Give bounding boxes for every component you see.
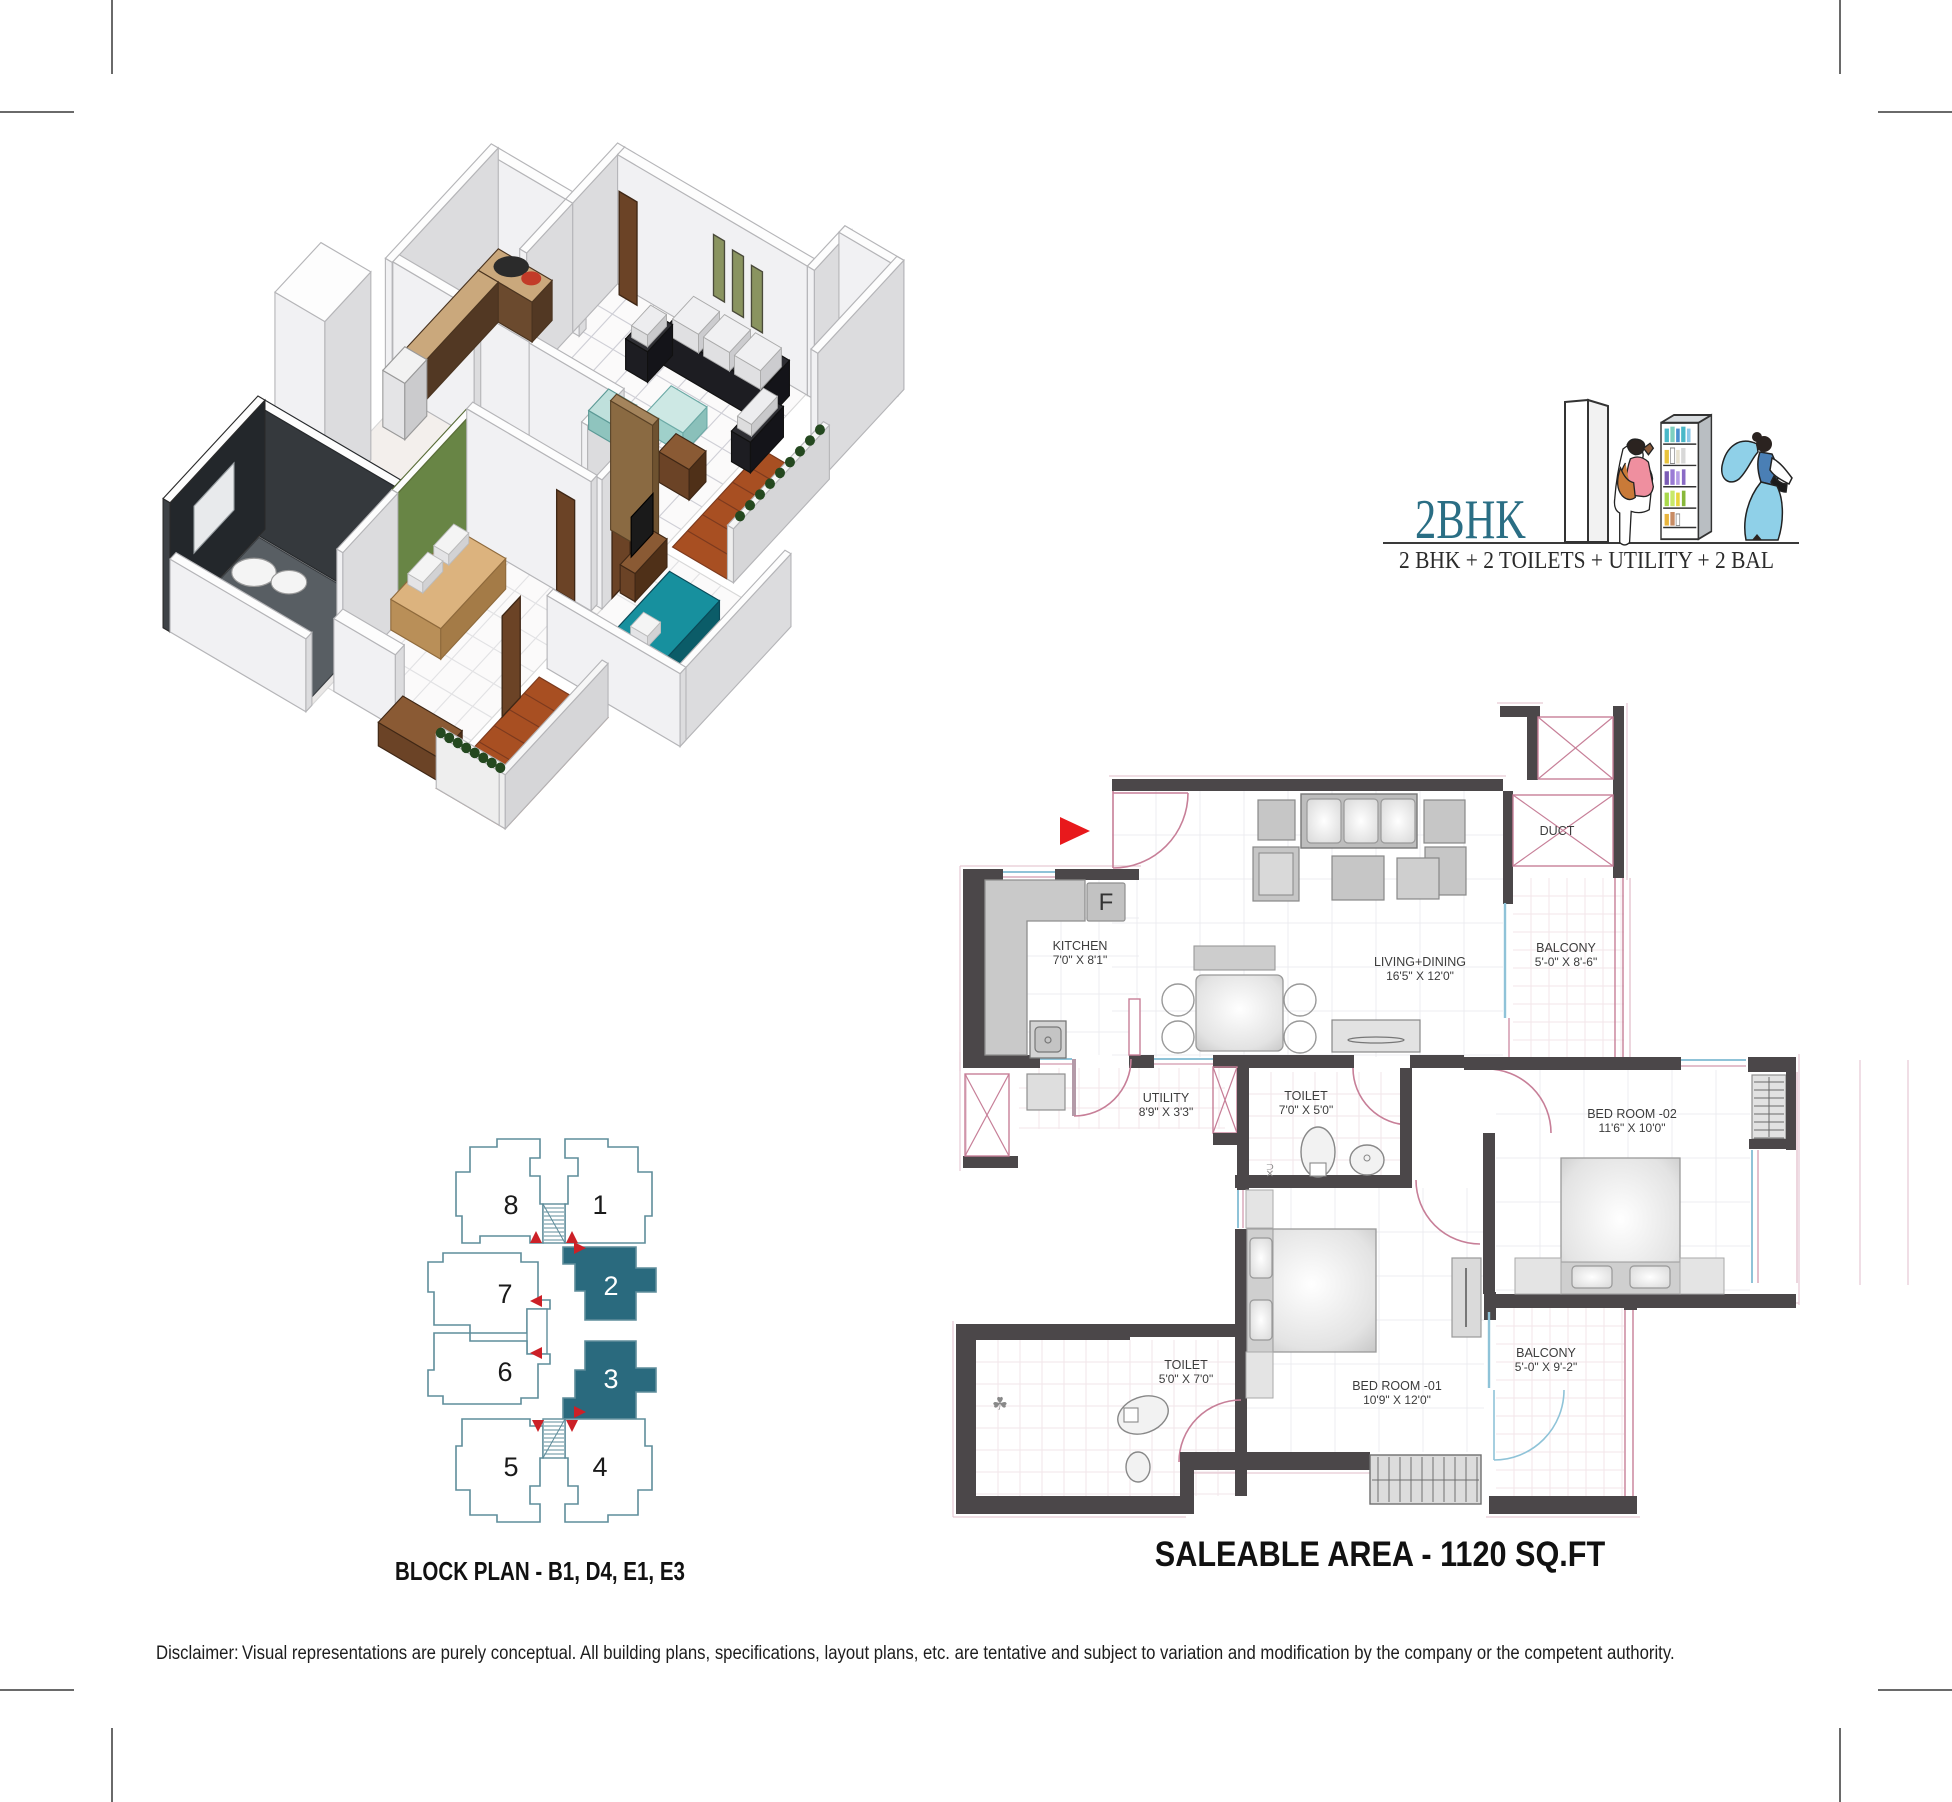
svg-text:TOILET: TOILET [1284, 1089, 1328, 1103]
svg-text:8: 8 [503, 1190, 518, 1220]
svg-text:7'0" X 5'0": 7'0" X 5'0" [1279, 1103, 1333, 1117]
svg-text:KITCHEN: KITCHEN [1053, 939, 1108, 953]
svg-text:3: 3 [603, 1364, 618, 1394]
svg-text:F: F [1099, 889, 1114, 916]
svg-text:2: 2 [603, 1271, 618, 1301]
svg-text:LIVING+DINING: LIVING+DINING [1374, 955, 1466, 969]
svg-text:BED ROOM -02: BED ROOM -02 [1587, 1107, 1677, 1121]
svg-text:16'5" X 12'0": 16'5" X 12'0" [1386, 969, 1454, 983]
svg-text:7'0" X 8'1": 7'0" X 8'1" [1053, 953, 1107, 967]
svg-text:11'6" X 10'0": 11'6" X 10'0" [1599, 1121, 1666, 1135]
svg-text:5: 5 [503, 1452, 518, 1482]
svg-text:⫂: ⫂ [1266, 1163, 1273, 1180]
svg-text:1: 1 [592, 1190, 607, 1220]
svg-text:BALCONY: BALCONY [1516, 1346, 1576, 1360]
svg-text:4: 4 [592, 1452, 607, 1482]
svg-text:UTILITY: UTILITY [1143, 1091, 1190, 1105]
svg-text:BALCONY: BALCONY [1536, 941, 1596, 955]
svg-text:6: 6 [497, 1357, 512, 1387]
svg-text:10'9" X 12'0": 10'9" X 12'0" [1363, 1393, 1431, 1407]
svg-text:☘: ☘ [992, 1394, 1008, 1414]
svg-text:7: 7 [497, 1279, 512, 1309]
svg-text:2 BHK + 2 TOILETS + UTILITY +: 2 BHK + 2 TOILETS + UTILITY + 2 BAL [1399, 548, 1774, 574]
svg-text:5'-0" X 9'-2": 5'-0" X 9'-2" [1515, 1360, 1577, 1374]
svg-text:TOILET: TOILET [1164, 1358, 1208, 1372]
svg-text:5'-0" X 8'-6": 5'-0" X 8'-6" [1535, 955, 1597, 969]
svg-text:2BHK: 2BHK [1415, 489, 1526, 551]
svg-text:DUCT: DUCT [1540, 824, 1575, 838]
svg-text:8'9" X 3'3": 8'9" X 3'3" [1139, 1105, 1193, 1119]
svg-text:5'0" X 7'0": 5'0" X 7'0" [1159, 1372, 1213, 1386]
svg-text:BED ROOM -01: BED ROOM -01 [1352, 1379, 1442, 1393]
